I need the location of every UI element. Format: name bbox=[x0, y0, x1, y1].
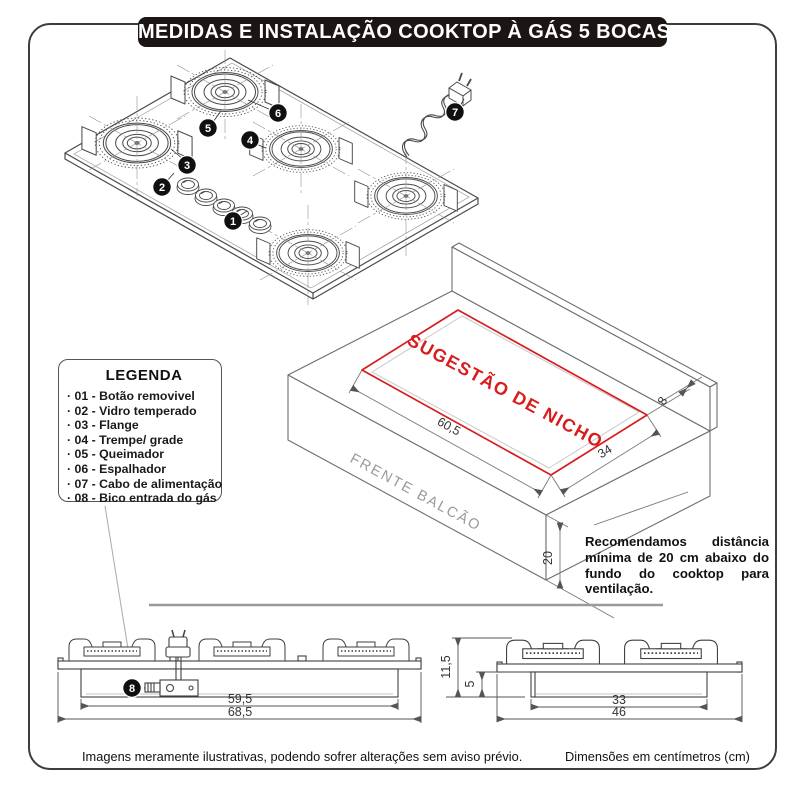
knob-5 bbox=[249, 217, 271, 234]
trempe-e bbox=[625, 640, 718, 664]
svg-text:8: 8 bbox=[129, 683, 135, 695]
callout-4: 4 bbox=[241, 131, 260, 150]
svg-text:6: 6 bbox=[275, 108, 281, 120]
callout-7: 7 bbox=[446, 103, 465, 122]
glass-slab-front bbox=[58, 661, 421, 669]
backsplash-end bbox=[710, 383, 717, 431]
power-plug bbox=[449, 73, 471, 106]
dim-front-inner-width: 59,5 bbox=[228, 692, 252, 706]
svg-text:5: 5 bbox=[205, 123, 211, 135]
dim-side-total-height: 11,5 bbox=[439, 655, 453, 678]
cooktop-isometric-view bbox=[65, 50, 478, 305]
callout-3: 3 bbox=[178, 156, 197, 175]
ventilation-recommendation: Recomendamos distância mínima de 20 cm a… bbox=[585, 534, 769, 597]
legend-item-07: · 07 - Cabo de alimentação bbox=[67, 477, 221, 492]
footer-disclaimer: Imagens meramente ilustrativas, podendo … bbox=[82, 749, 522, 764]
footer-units-note: Dimensões em centímetros (cm) bbox=[565, 749, 750, 764]
legend-item-04: · 04 - Trempe/ grade bbox=[67, 433, 221, 448]
trempe-b bbox=[199, 639, 285, 661]
svg-text:3: 3 bbox=[184, 160, 190, 172]
legend-item-06: · 06 - Espalhador bbox=[67, 462, 221, 477]
legend-box: LEGENDA · 01 - Botão removivel · 02 - Vi… bbox=[58, 359, 222, 502]
glass-slab-side bbox=[497, 664, 742, 672]
trempe-a bbox=[69, 639, 155, 661]
page: SUGESTÃO DE NICHO FRENTE BALCÃO 60,5 34 … bbox=[0, 0, 800, 800]
legend-item-01: · 01 - Botão removivel bbox=[67, 389, 221, 404]
legend-item-05: · 05 - Queimador bbox=[67, 447, 221, 462]
callout-2: 2 bbox=[153, 178, 172, 197]
svg-text:7: 7 bbox=[452, 107, 458, 119]
knob-1 bbox=[177, 178, 199, 195]
power-cable bbox=[403, 94, 455, 157]
dim-side-body-height: 5 bbox=[463, 680, 477, 687]
legend-title: LEGENDA bbox=[67, 367, 221, 384]
trempe-c bbox=[323, 639, 409, 661]
callout-5: 5 bbox=[199, 119, 218, 138]
side-elevation-view bbox=[446, 638, 742, 722]
trempe-d bbox=[507, 640, 600, 664]
knob-2 bbox=[195, 189, 217, 206]
page-title: MEDIDAS E INSTALAÇÃO COOKTOP À GÁS 5 BOC… bbox=[138, 17, 667, 47]
legend-item-03: · 03 - Flange bbox=[67, 418, 221, 433]
legend-item-02: · 02 - Vidro temperado bbox=[67, 404, 221, 419]
dim-front-outer-width: 68,5 bbox=[228, 705, 252, 719]
legend-item-08: · 08 - Bico entrada do gás bbox=[67, 491, 221, 506]
dim-clearance-below: 20 bbox=[541, 551, 555, 565]
svg-text:4: 4 bbox=[247, 135, 254, 147]
svg-text:1: 1 bbox=[230, 216, 236, 228]
callout-1: 1 bbox=[224, 212, 243, 231]
svg-text:2: 2 bbox=[159, 182, 165, 194]
callout-6: 6 bbox=[269, 104, 288, 123]
callout-8: 8 bbox=[123, 679, 142, 698]
dim-side-outer-width: 46 bbox=[612, 705, 626, 719]
